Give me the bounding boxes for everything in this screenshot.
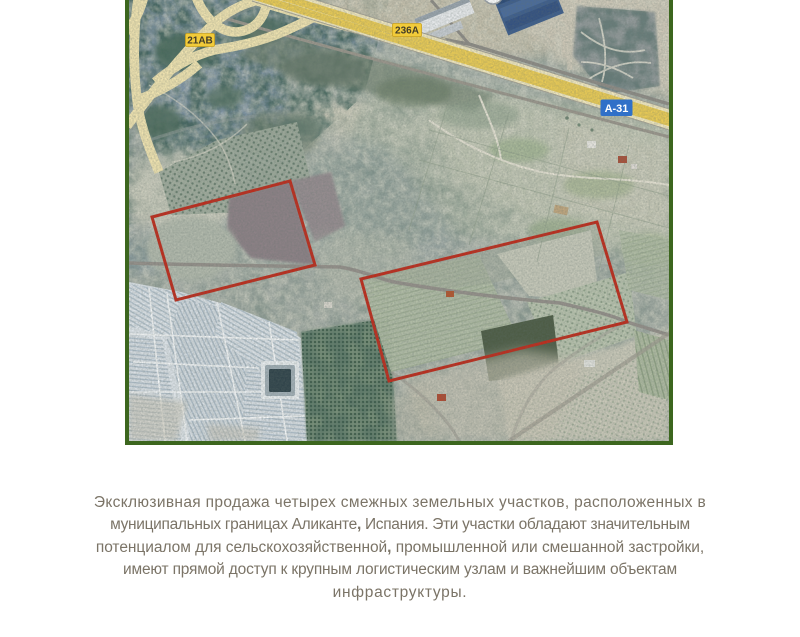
svg-text:А-31: А-31 [605, 103, 629, 115]
svg-text:236A: 236A [395, 26, 419, 37]
svg-text:21AB: 21AB [187, 36, 213, 47]
